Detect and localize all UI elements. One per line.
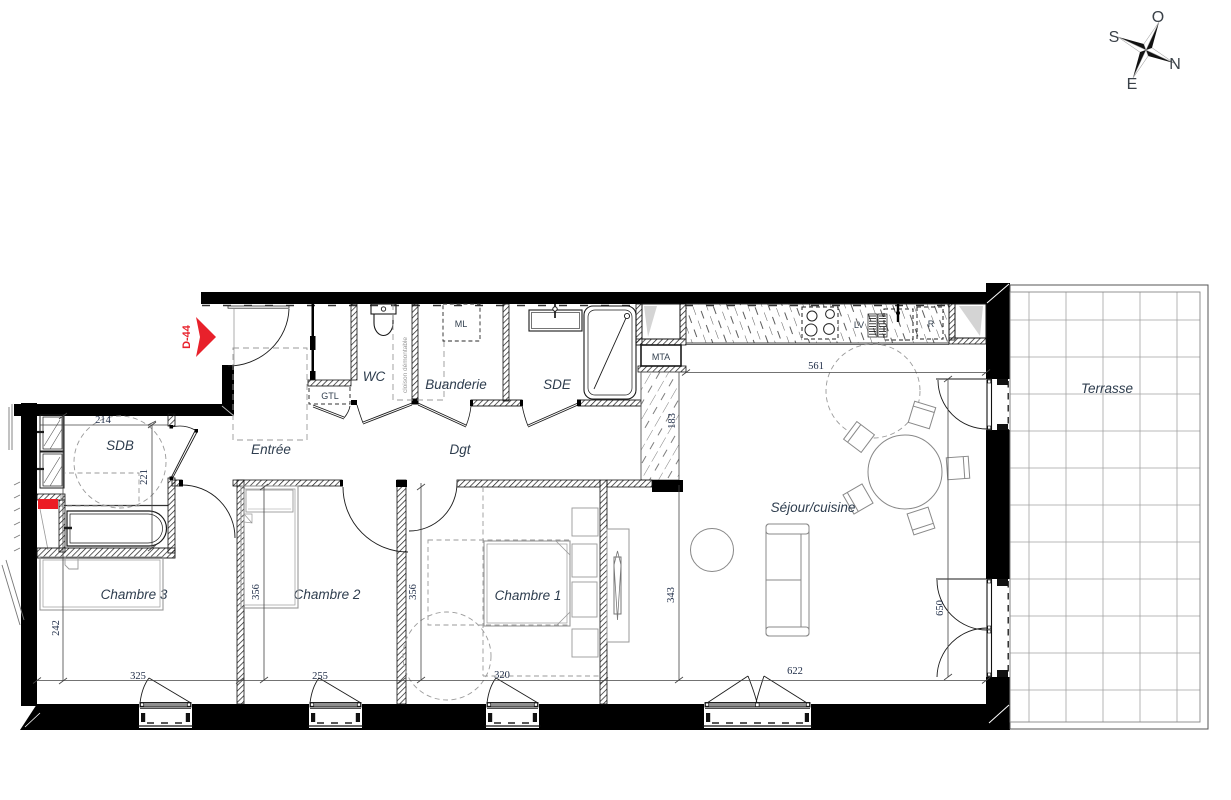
svg-text:E: E [1127,76,1138,93]
svg-text:S: S [1109,29,1120,46]
svg-text:622: 622 [787,666,803,677]
svg-text:SDB: SDB [106,438,134,453]
svg-text:Terrasse: Terrasse [1081,381,1133,396]
svg-text:Chambre 3: Chambre 3 [101,587,168,602]
svg-text:561: 561 [808,361,824,372]
svg-text:ML: ML [455,319,468,329]
svg-text:221: 221 [139,469,150,485]
svg-text:650: 650 [935,600,946,616]
svg-text:183: 183 [667,413,678,429]
svg-text:SDE: SDE [543,377,572,392]
svg-text:Séjour/cuisine: Séjour/cuisine [771,500,856,515]
svg-text:Buanderie: Buanderie [425,377,487,392]
svg-text:Chambre 2: Chambre 2 [294,587,361,602]
svg-text:356: 356 [408,584,419,600]
svg-text:Dgt: Dgt [449,442,471,457]
svg-text:320: 320 [494,670,510,681]
svg-text:cloison démontable: cloison démontable [402,337,409,393]
svg-text:255: 255 [312,671,328,682]
svg-text:325: 325 [130,671,146,682]
svg-text:WC: WC [363,369,386,384]
svg-text:Chambre 1: Chambre 1 [495,588,562,603]
svg-text:LV: LV [854,320,864,330]
svg-text:GTL: GTL [321,391,339,401]
svg-text:242: 242 [51,620,62,636]
svg-text:MTA: MTA [652,352,670,362]
svg-text:356: 356 [251,584,262,600]
svg-text:N: N [1169,56,1181,73]
svg-text:D-44: D-44 [181,324,193,349]
svg-text:Entrée: Entrée [251,442,291,457]
svg-text:214: 214 [95,415,112,426]
svg-text:R: R [928,319,935,329]
svg-text:343: 343 [666,587,677,603]
svg-text:O: O [1152,9,1164,26]
